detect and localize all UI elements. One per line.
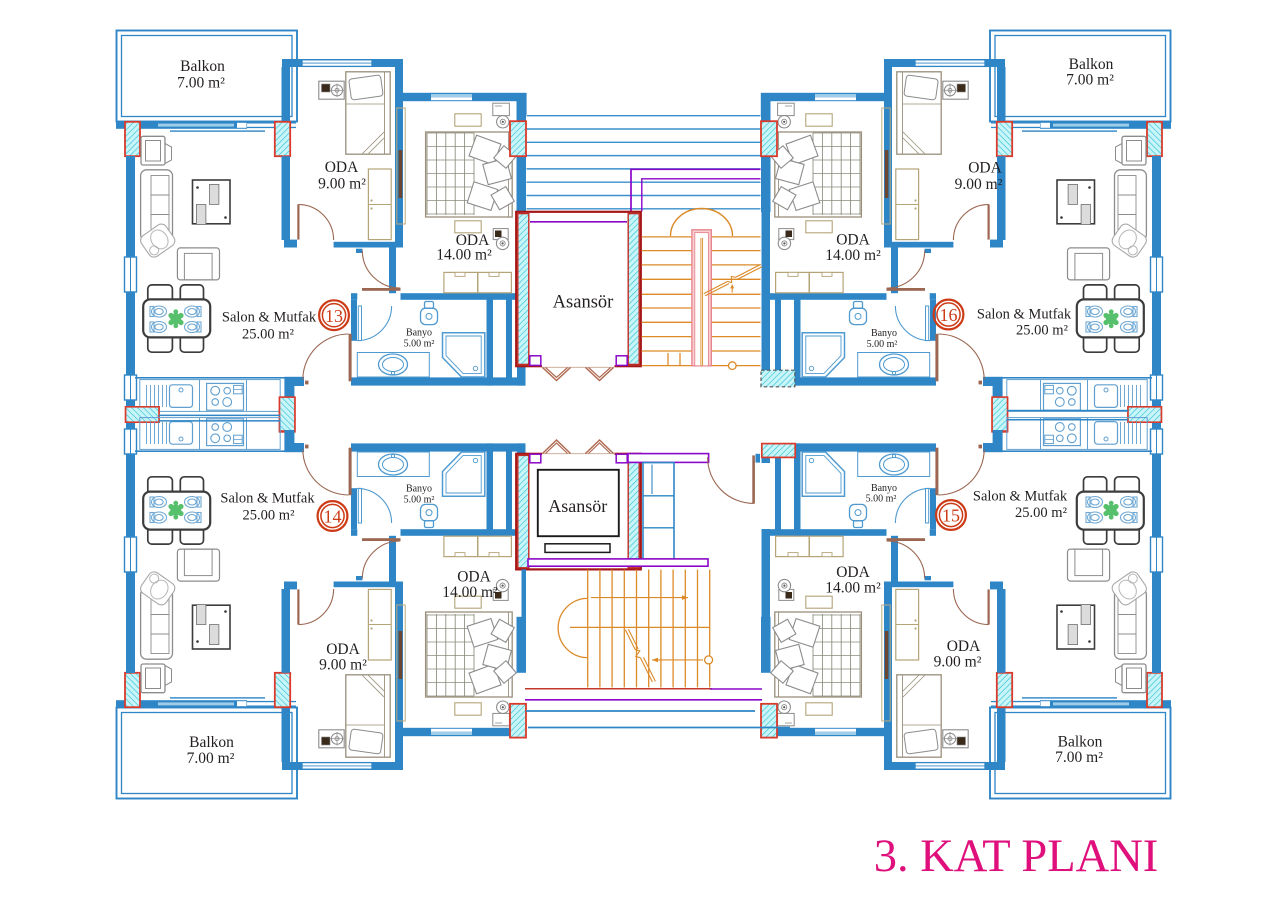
svg-text:5.00 m²: 5.00 m² (866, 494, 897, 505)
svg-text:Salon & Mutfak: Salon & Mutfak (977, 307, 1072, 323)
svg-text:9.00 m²: 9.00 m² (318, 176, 366, 193)
svg-text:14.00 m²: 14.00 m² (825, 247, 881, 264)
svg-text:Salon & Mutfak: Salon & Mutfak (973, 489, 1068, 505)
svg-text:Balkon: Balkon (189, 734, 234, 751)
svg-text:7.00 m²: 7.00 m² (1055, 749, 1103, 766)
svg-text:16: 16 (940, 305, 958, 325)
svg-text:5.00 m²: 5.00 m² (404, 339, 435, 350)
svg-text:7.00 m²: 7.00 m² (177, 75, 225, 92)
svg-text:ODA: ODA (326, 641, 360, 658)
svg-text:5.00 m²: 5.00 m² (404, 495, 435, 506)
svg-text:Banyo: Banyo (406, 484, 432, 495)
svg-text:14: 14 (324, 507, 342, 527)
svg-text:ODA: ODA (968, 160, 1002, 177)
svg-text:Salon & Mutfak: Salon & Mutfak (220, 491, 315, 507)
svg-text:Asansör: Asansör (553, 293, 614, 313)
svg-text:14.00 m²: 14.00 m² (442, 584, 498, 601)
svg-text:25.00 m²: 25.00 m² (1015, 505, 1068, 521)
svg-text:ODA: ODA (947, 638, 981, 655)
svg-text:25.00 m²: 25.00 m² (243, 508, 296, 524)
svg-text:Balkon: Balkon (180, 58, 225, 75)
svg-text:ODA: ODA (457, 569, 491, 586)
svg-text:9.00 m²: 9.00 m² (955, 176, 1003, 193)
svg-text:25.00 m²: 25.00 m² (242, 327, 295, 343)
svg-text:Banyo: Banyo (871, 483, 897, 494)
svg-text:Banyo: Banyo (871, 328, 897, 339)
svg-text:15: 15 (942, 506, 960, 526)
svg-text:Banyo: Banyo (406, 328, 432, 339)
svg-text:7.00 m²: 7.00 m² (187, 750, 235, 767)
svg-text:25.00 m²: 25.00 m² (1016, 323, 1069, 339)
svg-text:9.00 m²: 9.00 m² (319, 657, 367, 674)
svg-text:Salon & Mutfak: Salon & Mutfak (222, 310, 317, 326)
svg-text:14.00 m²: 14.00 m² (825, 580, 881, 597)
svg-text:5.00 m²: 5.00 m² (867, 339, 898, 350)
svg-text:ODA: ODA (836, 564, 870, 581)
svg-text:Asansör: Asansör (548, 496, 607, 516)
svg-text:3. KAT PLANI: 3. KAT PLANI (874, 831, 1159, 882)
svg-text:Balkon: Balkon (1069, 56, 1114, 73)
svg-text:9.00 m²: 9.00 m² (934, 654, 982, 671)
svg-text:Balkon: Balkon (1058, 734, 1103, 751)
svg-text:7.00 m²: 7.00 m² (1066, 72, 1114, 89)
svg-text:ODA: ODA (325, 159, 359, 176)
svg-text:ODA: ODA (836, 232, 870, 249)
svg-text:13: 13 (325, 306, 343, 326)
svg-text:14.00 m²: 14.00 m² (436, 247, 492, 264)
